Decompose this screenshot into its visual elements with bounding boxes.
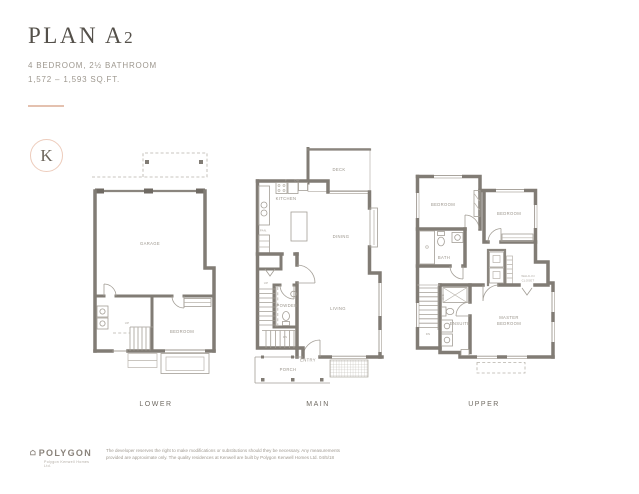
footer: POLYGON Polygon Kenwell Homes Ltd. The d… (30, 447, 348, 468)
garage-label: GARAGE (140, 241, 160, 246)
floorplan-sheet: PLAN A2 4 BEDROOM, 2½ BATHROOM 1,572 – 1… (0, 0, 639, 494)
disclaimer-line-1: The developer reserves the right to make… (106, 447, 348, 454)
living-label: LIVING (330, 306, 346, 311)
upper-bedroom1-label: BEDROOM (431, 202, 455, 207)
main-up-label: UP (264, 281, 268, 285)
wd-label: W/D (441, 294, 445, 300)
polygon-tagline: Polygon Kenwell Homes Ltd. (44, 460, 92, 468)
main-floor-caption: MAIN (306, 401, 330, 408)
disclaimer-line-2: provided are approximate only. The quali… (106, 454, 348, 461)
dishwasher-label: DW (294, 179, 299, 183)
lower-bedroom-label: BEDROOM (170, 329, 194, 334)
master-bedroom-label-line2: BEDROOM (497, 321, 521, 326)
polygon-brand-name: POLYGON (39, 448, 92, 458)
ensuite-label: ENSUITE (450, 321, 471, 326)
deck-label: DECK (332, 167, 345, 172)
main-dn-label: DN (283, 335, 288, 339)
lower-plan: GARAGE BEDROOM UP (92, 153, 214, 374)
main-plan: DECK (255, 149, 382, 384)
walkin-closet-label-line2: CLOSET (522, 279, 535, 283)
bath-label: BATH (438, 255, 450, 260)
kitchen-label: KITCHEN (276, 196, 297, 201)
polygon-logo-icon (30, 447, 36, 458)
disclaimer-text: The developer reserves the right to make… (106, 447, 348, 462)
master-bedroom-label-line1: MASTER (499, 315, 519, 320)
walkin-closet-label-line1: WALK-IN (521, 274, 534, 278)
lower-floor-caption: LOWER (139, 401, 172, 408)
upper-floor-caption: UPPER (468, 401, 500, 408)
lower-up-label: UP (125, 321, 129, 325)
upper-dn-label: DN (426, 332, 431, 336)
dining-label: DINING (333, 234, 350, 239)
porch-label: PORCH (280, 367, 297, 372)
entry-label: ENTRY (300, 358, 316, 363)
upper-bedroom2-label: BEDROOM (497, 211, 521, 216)
pantry-label: PAN. (260, 229, 267, 233)
polygon-brand-block: POLYGON Polygon Kenwell Homes Ltd. (30, 447, 92, 468)
fridge-label: F (285, 179, 287, 183)
powder-label: POWDER (277, 303, 298, 308)
floorplans-drawing: GARAGE BEDROOM UP DECK (0, 0, 639, 494)
upper-plan: BEDROOM BEDROOM BATH ENSUITE MASTER BEDR… (415, 174, 555, 373)
